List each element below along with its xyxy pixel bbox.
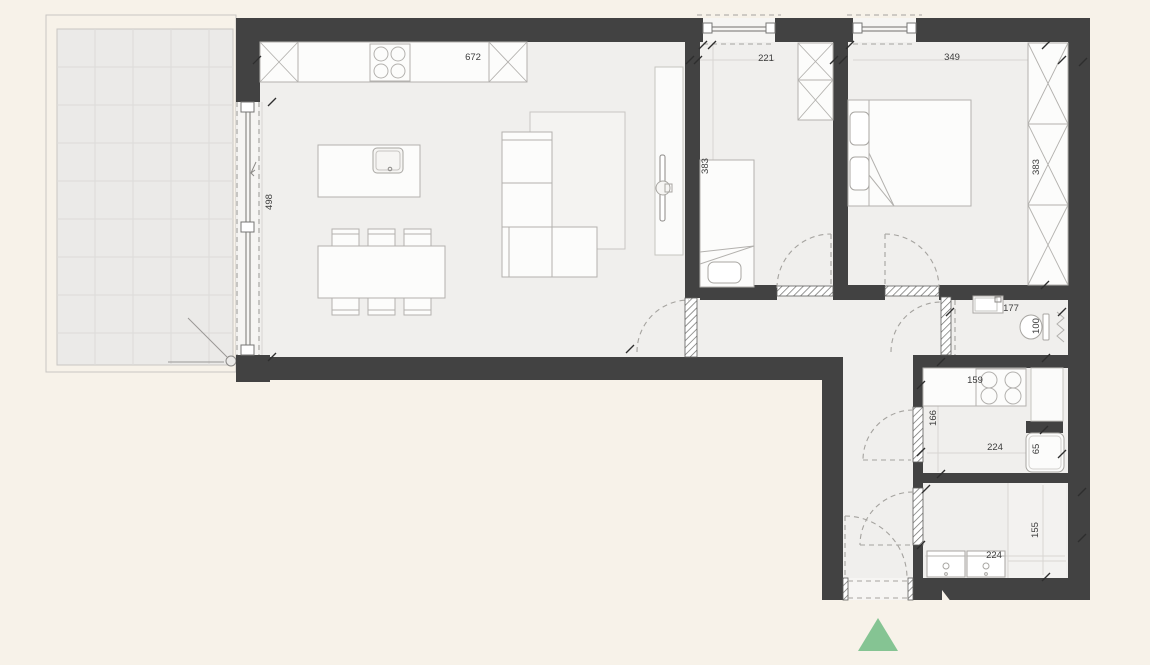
- terrace: [46, 15, 236, 372]
- wall-hall-left: [822, 380, 843, 600]
- pillow: [850, 112, 869, 145]
- door-threshold-bedroom2: [885, 286, 939, 296]
- wall-hall-right-b: [913, 462, 923, 488]
- dimension-label-224-bathroom2: 224: [986, 550, 1002, 561]
- door-leaf-living: [685, 298, 697, 357]
- tv-unit: [655, 67, 683, 255]
- window-bedroom-2: [847, 15, 922, 44]
- dimension-label-672: 672: [465, 52, 481, 63]
- wall-top-right: [916, 18, 1090, 42]
- wall-hall-right-c: [913, 545, 923, 578]
- wall-top-between-windows: [775, 18, 853, 42]
- dimension-label-221: 221: [758, 53, 774, 64]
- wall-bedrooms-bottom-b: [833, 285, 885, 300]
- dining-table: [318, 246, 445, 298]
- dimension-label-155: 155: [1030, 522, 1041, 538]
- window-opening: [703, 18, 775, 42]
- cooktop-icon: [370, 44, 410, 81]
- slider-bracket: [241, 102, 254, 112]
- terrace-tiles: [57, 29, 233, 365]
- wall-bathroom1-bottom: [913, 355, 1068, 368]
- wall-right: [1068, 42, 1090, 600]
- dimension-label-65: 65: [1031, 444, 1042, 455]
- floor-plan-canvas: 672 221 349 498 383 383 177 100 159 166 …: [0, 0, 1150, 665]
- window-bracket: [703, 23, 712, 33]
- wall-top-living: [236, 18, 703, 42]
- window-bracket: [907, 23, 916, 33]
- wall-niche-bottom: [1026, 421, 1063, 433]
- chair: [368, 298, 395, 315]
- dimension-label-498: 498: [264, 194, 275, 210]
- entrance-marker-icon: [858, 618, 898, 651]
- island-sink-icon: [373, 148, 403, 173]
- door-leaf-kitchen: [913, 407, 923, 462]
- door-leaf-bathroom1: [941, 297, 951, 355]
- chair: [404, 298, 431, 315]
- kitchen-counter-living: [260, 42, 527, 82]
- bathroom-sink-icon: [973, 296, 1003, 313]
- slider-bracket: [241, 345, 254, 355]
- dimension-label-177: 177: [1003, 303, 1019, 314]
- wall-bedroom1-bedroom2: [833, 42, 848, 300]
- wall-left-upper: [236, 42, 260, 102]
- chair: [368, 229, 395, 246]
- wall-bottom-right: [913, 578, 1090, 600]
- wardrobe-bedroom-1: [798, 43, 833, 120]
- wall-kitchen-bottom: [923, 473, 1068, 483]
- bed-single: [700, 160, 754, 287]
- pillow: [708, 262, 741, 283]
- chair: [332, 229, 359, 246]
- floor-plan-page: 672 221 349 498 383 383 177 100 159 166 …: [0, 0, 1150, 665]
- door-leaf-bathroom2: [913, 488, 923, 545]
- bed-double: [848, 100, 971, 206]
- wall-hall-right-a: [913, 357, 923, 407]
- wall-living-bottom: [236, 357, 843, 380]
- entrance-jamb: [908, 578, 913, 600]
- slider-bracket: [241, 222, 254, 232]
- pillow: [850, 157, 869, 190]
- window-bracket: [766, 23, 775, 33]
- chair: [404, 229, 431, 246]
- dimension-label-224-kitchen: 224: [987, 442, 1003, 453]
- kitchen-island: [318, 145, 420, 197]
- dimension-label-166: 166: [928, 410, 939, 426]
- wall-living-bedroom1: [685, 42, 700, 298]
- cooktop-icon: [976, 369, 1026, 406]
- fridge-niche: [1031, 368, 1063, 421]
- dimension-label-349: 349: [944, 52, 960, 63]
- chair: [332, 298, 359, 315]
- sliding-door-terrace: [237, 102, 259, 355]
- dimension-label-383-bedroom1: 383: [700, 158, 711, 174]
- dimension-label-100: 100: [1031, 318, 1042, 334]
- dimension-label-159: 159: [967, 375, 983, 386]
- dimension-label-383-bedroom2: 383: [1031, 159, 1042, 175]
- dining-set: [318, 229, 445, 315]
- vanity-sink-icon: [927, 551, 965, 577]
- window-bracket: [853, 23, 862, 33]
- entrance-jamb: [843, 578, 848, 600]
- door-threshold-bedroom1: [777, 286, 833, 296]
- window-bedroom-1: [697, 15, 781, 44]
